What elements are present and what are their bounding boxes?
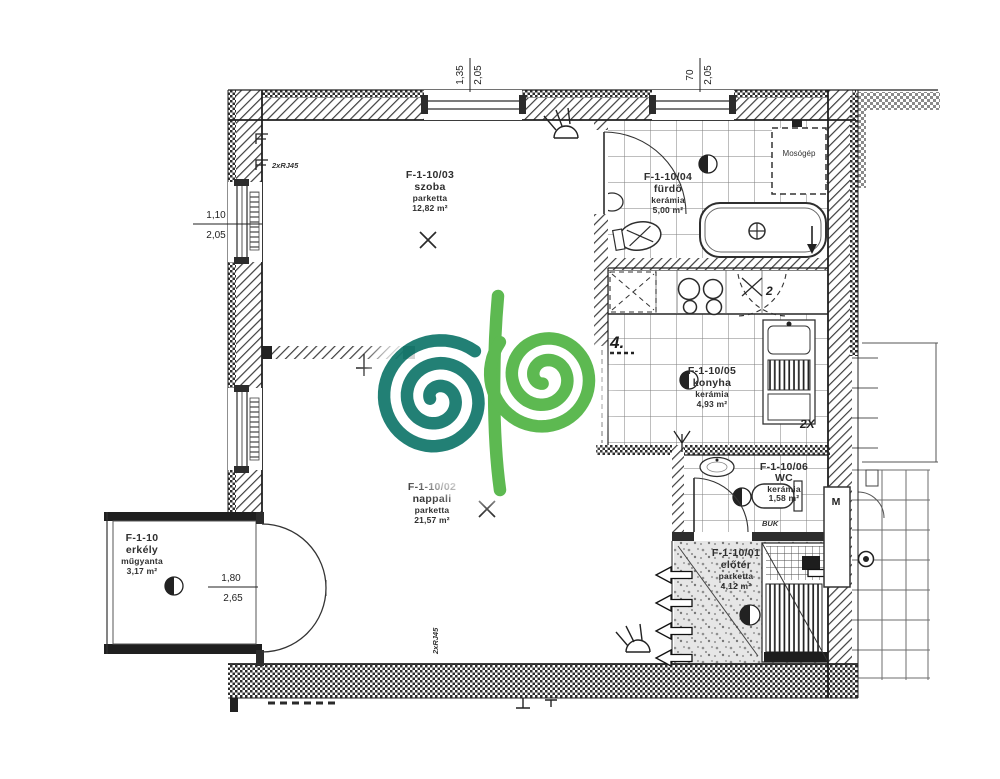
dim-width: 1,35	[455, 65, 466, 85]
svg-text:1,58 m²: 1,58 m²	[769, 493, 800, 503]
kitchen-sink-unit	[763, 320, 815, 424]
svg-text:kerámia: kerámia	[695, 389, 729, 399]
socket-label: 2X	[799, 417, 816, 431]
exterior-floor-drain-icon	[859, 552, 874, 567]
svg-text:5,00 m²: 5,00 m²	[653, 205, 684, 215]
washing-machine-label: Mosógép	[783, 149, 816, 158]
floor-plan-page: Mosógép 2 2X	[0, 0, 1000, 779]
svg-text:kerámia: kerámia	[651, 195, 685, 205]
sink-wc	[700, 458, 734, 477]
window-furdo-top	[649, 90, 736, 120]
wc-window-mark: BUK	[762, 519, 779, 528]
exterior-wall-band	[856, 92, 940, 110]
elevator-shaft: M	[824, 487, 850, 587]
svg-text:3,17 m²: 3,17 m²	[127, 566, 158, 576]
svg-text:WC: WC	[775, 472, 793, 484]
room-label-erkely: F-1-10 erkély műgyanta 3,17 m²	[121, 532, 163, 576]
hall-ceiling-light-icon	[740, 605, 760, 625]
svg-text:parketta: parketta	[413, 193, 448, 203]
ceiling-light-icon	[699, 155, 717, 173]
floor-plan-svg: Mosógép 2 2X	[0, 0, 1000, 779]
svg-text:F-1-10/01: F-1-10/01	[712, 547, 760, 559]
dim-width: 70	[685, 69, 696, 81]
svg-text:előtér: előtér	[721, 559, 751, 571]
svg-text:konyha: konyha	[693, 377, 732, 389]
dim-width: 1,10	[206, 210, 226, 221]
svg-text:műgyanta: műgyanta	[121, 556, 163, 566]
svg-text:parketta: parketta	[415, 505, 450, 515]
svg-text:parketta: parketta	[719, 571, 754, 581]
kitchen-unit-number: 4.	[609, 333, 624, 352]
svg-text:F-1-10: F-1-10	[126, 532, 159, 544]
dim-height: 2,05	[206, 230, 226, 241]
dim-width: 1,80	[221, 573, 241, 584]
data-socket-label-bottom: 2xRJ45	[431, 627, 440, 655]
washing-machine: Mosógép	[772, 119, 826, 194]
radiator	[250, 192, 259, 250]
data-socket-label: 2xRJ45	[271, 161, 299, 170]
window-szoba-top	[421, 90, 526, 120]
svg-text:fürdő: fürdő	[654, 183, 682, 195]
svg-text:4,12 m²: 4,12 m²	[721, 581, 752, 591]
svg-text:erkély: erkély	[126, 544, 158, 556]
balcony-ceiling-light-icon	[165, 577, 183, 595]
dim-height: 2,65	[223, 593, 243, 604]
wall-corner-mark	[230, 698, 238, 712]
window-left-upper	[228, 179, 262, 264]
svg-text:4,93 m²: 4,93 m²	[697, 399, 728, 409]
svg-text:21,57 m²: 21,57 m²	[414, 515, 450, 525]
dim-height: 2,05	[703, 65, 714, 85]
bathtub	[700, 203, 826, 257]
stair-landing-block	[802, 556, 820, 570]
svg-text:F-1-10/03: F-1-10/03	[406, 169, 454, 181]
elevator-label: M	[832, 496, 841, 508]
svg-text:F-1-10/04: F-1-10/04	[644, 171, 692, 183]
dim-height: 2,05	[473, 65, 484, 85]
radiator	[250, 398, 259, 460]
window-left-lower	[228, 385, 262, 473]
cabinet-count-label: 2	[765, 284, 773, 298]
svg-text:F-1-10/05: F-1-10/05	[688, 365, 736, 377]
svg-text:12,82 m²: 12,82 m²	[412, 203, 448, 213]
svg-text:szoba: szoba	[414, 181, 445, 193]
